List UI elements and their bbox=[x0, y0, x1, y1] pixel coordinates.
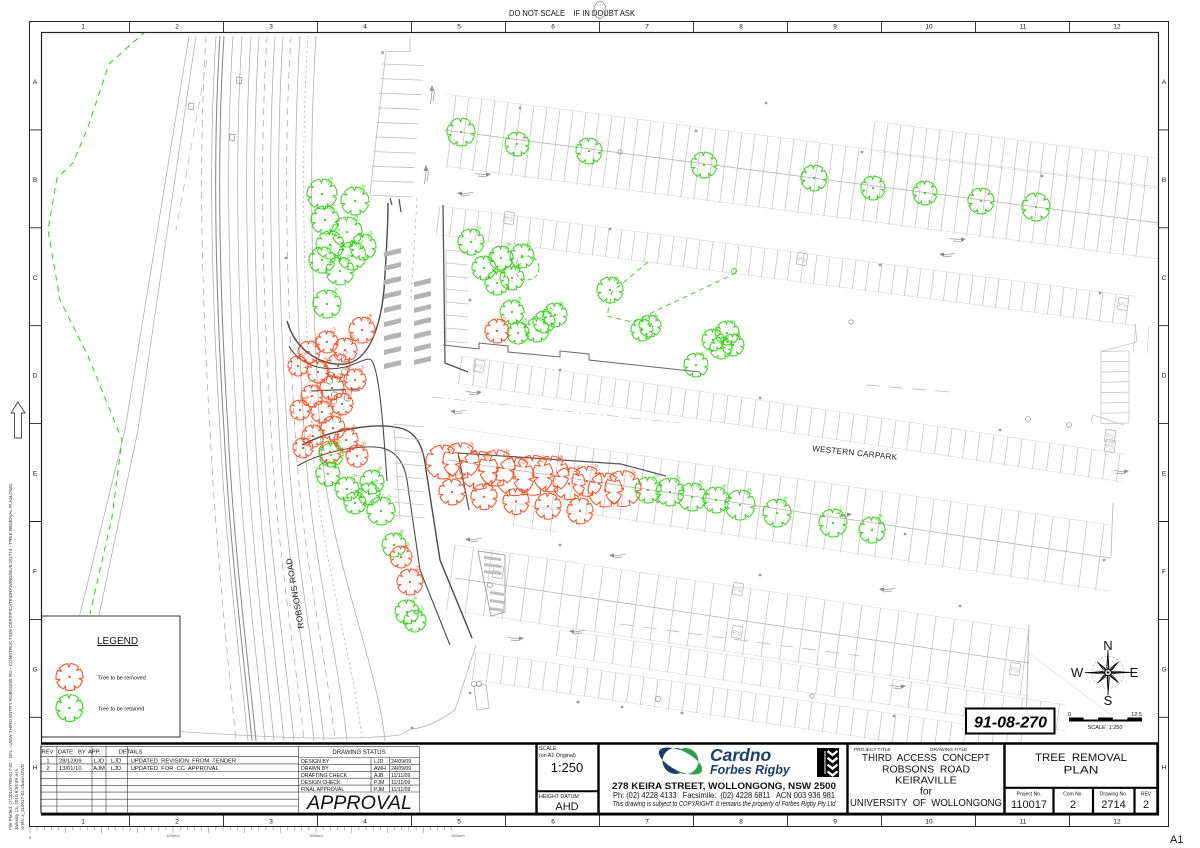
svg-text:SCALE 1:250: SCALE 1:250 bbox=[1088, 725, 1123, 731]
svg-text:UPDATED FOR CC APPROVAL: UPDATED FOR CC APPROVAL bbox=[131, 766, 220, 772]
svg-text:UPDATED REVISION FROM TENDE: UPDATED REVISION FROM TENDER bbox=[131, 758, 236, 764]
svg-text:28/12/09: 28/12/09 bbox=[59, 758, 82, 764]
svg-text:DESIGN CHECK: DESIGN CHECK bbox=[301, 780, 341, 786]
svg-text:3: 3 bbox=[269, 819, 273, 826]
svg-text:24/09/09: 24/09/09 bbox=[391, 766, 411, 772]
svg-text:100mm: 100mm bbox=[166, 833, 180, 838]
svg-text:UNIVERSITY OF WOLLONGONG: UNIVERSITY OF WOLLONGONG bbox=[850, 797, 1002, 809]
svg-text:D: D bbox=[1162, 373, 1167, 380]
svg-text:4: 4 bbox=[363, 24, 367, 31]
svg-text:2: 2 bbox=[1070, 799, 1076, 811]
svg-text:11: 11 bbox=[1020, 24, 1027, 31]
svg-text:PS: PS bbox=[504, 216, 513, 223]
svg-text:C: C bbox=[33, 275, 38, 282]
svg-text:10: 10 bbox=[925, 24, 933, 31]
svg-text:H: H bbox=[33, 764, 38, 771]
svg-text:DATE: DATE bbox=[58, 750, 73, 756]
svg-text:11/11/09: 11/11/09 bbox=[391, 780, 411, 786]
svg-text:Drawing No.: Drawing No. bbox=[1100, 792, 1128, 798]
svg-text:B: B bbox=[1162, 177, 1166, 184]
svg-text:300mm: 300mm bbox=[451, 833, 465, 838]
svg-text:LEGEND: LEGEND bbox=[97, 636, 138, 647]
svg-text:2: 2 bbox=[175, 819, 179, 826]
svg-text:LJD: LJD bbox=[111, 766, 121, 772]
svg-text:2714: 2714 bbox=[1101, 799, 1125, 811]
svg-text:PLAN: PLAN bbox=[1064, 765, 1099, 777]
svg-text:APP.: APP. bbox=[88, 750, 101, 756]
svg-text:PS: PS bbox=[732, 630, 741, 637]
svg-text:TREE REMOVAL: TREE REMOVAL bbox=[1035, 752, 1127, 764]
svg-text:C: C bbox=[1162, 275, 1167, 282]
svg-text:REV: REV bbox=[42, 750, 54, 756]
svg-text:A: A bbox=[1162, 79, 1167, 86]
svg-text:N: N bbox=[1103, 638, 1112, 653]
svg-text:10: 10 bbox=[925, 819, 933, 826]
svg-text:91-08-270: 91-08-270 bbox=[974, 715, 1047, 732]
svg-text:Tree to be removed: Tree to be removed bbox=[98, 676, 146, 682]
svg-text:AWH: AWH bbox=[374, 766, 386, 772]
svg-text:D: D bbox=[33, 373, 38, 380]
svg-text:F: F bbox=[1162, 569, 1166, 576]
svg-text:Forbes Rigby: Forbes Rigby bbox=[710, 763, 791, 777]
svg-text:AHD: AHD bbox=[555, 801, 578, 813]
svg-text:13/01/10: 13/01/10 bbox=[59, 766, 82, 772]
svg-text:1: 1 bbox=[81, 819, 85, 826]
svg-text:6: 6 bbox=[551, 24, 555, 31]
svg-text:SCALE:: SCALE: bbox=[539, 746, 558, 752]
svg-text:(on A1 Original): (on A1 Original) bbox=[539, 753, 576, 759]
svg-text:Xrefs: x_110017-02-2base.DWG: Xrefs: x_110017-02-2base.DWG bbox=[20, 763, 25, 830]
svg-text:0: 0 bbox=[1068, 712, 1071, 718]
svg-text:F: F bbox=[33, 569, 37, 576]
svg-text:PS: PS bbox=[1118, 302, 1127, 309]
svg-text:11: 11 bbox=[1020, 819, 1027, 826]
svg-text:BY: BY bbox=[78, 750, 86, 756]
svg-text:Project No.: Project No. bbox=[1017, 792, 1042, 798]
svg-text:2: 2 bbox=[1143, 799, 1149, 811]
svg-text:G: G bbox=[1161, 666, 1166, 673]
svg-text:This drawing is subject to COP: This drawing is subject to COPYRIGHT. It… bbox=[613, 799, 837, 808]
svg-text:A1: A1 bbox=[1170, 834, 1183, 846]
svg-text:200mm: 200mm bbox=[309, 833, 323, 838]
svg-text:File Plotted: U:\2010\YR8-017-: File Plotted: U:\2010\YR8-017-02 - DFL -… bbox=[8, 483, 13, 830]
svg-text:DESIGN BY: DESIGN BY bbox=[301, 759, 330, 765]
svg-text:11/11/09: 11/11/09 bbox=[391, 773, 411, 779]
svg-text:January 13, 2010 9:53:49 a.m.: January 13, 2010 9:53:49 a.m. bbox=[14, 768, 19, 830]
svg-text:W: W bbox=[1071, 665, 1084, 680]
svg-text:7: 7 bbox=[645, 24, 649, 31]
svg-text:G: G bbox=[32, 666, 37, 673]
svg-text:12: 12 bbox=[1113, 24, 1121, 31]
svg-text:9: 9 bbox=[833, 819, 837, 826]
svg-text:APPROVAL: APPROVAL bbox=[306, 792, 412, 814]
svg-text:1:250: 1:250 bbox=[551, 760, 584, 775]
svg-text:3: 3 bbox=[269, 24, 273, 31]
svg-text:5: 5 bbox=[457, 819, 461, 826]
svg-text:1: 1 bbox=[81, 24, 85, 31]
svg-text:12.5: 12.5 bbox=[1131, 712, 1142, 718]
svg-text:1: 1 bbox=[46, 758, 49, 764]
svg-text:AJM: AJM bbox=[93, 766, 105, 772]
svg-text:H: H bbox=[1162, 764, 1167, 771]
svg-text:2: 2 bbox=[175, 24, 179, 31]
svg-text:4: 4 bbox=[363, 819, 367, 826]
svg-text:5: 5 bbox=[457, 24, 461, 31]
svg-text:S: S bbox=[1104, 693, 1113, 708]
svg-text:AJB: AJB bbox=[374, 773, 384, 779]
svg-text:DRAWN BY: DRAWN BY bbox=[301, 766, 329, 772]
svg-text:2: 2 bbox=[46, 766, 49, 772]
svg-text:DRAFTING CHECK: DRAFTING CHECK bbox=[301, 773, 348, 779]
svg-text:12: 12 bbox=[1113, 819, 1121, 826]
svg-text:PS: PS bbox=[797, 257, 806, 264]
svg-text:Tree to be retained: Tree to be retained bbox=[98, 707, 144, 713]
svg-text:PS: PS bbox=[474, 364, 483, 371]
svg-text:PS: PS bbox=[1105, 444, 1114, 451]
svg-text:8: 8 bbox=[739, 819, 743, 826]
svg-text:A: A bbox=[33, 79, 38, 86]
svg-text:9: 9 bbox=[833, 24, 837, 31]
svg-text:LJD: LJD bbox=[111, 758, 121, 764]
svg-text:REV: REV bbox=[1141, 792, 1152, 798]
svg-text:278 KEIRA STREET, WOLLONGONG,: 278 KEIRA STREET, WOLLONGONG, NSW 2500 bbox=[612, 781, 836, 791]
svg-text:24/09/09: 24/09/09 bbox=[391, 759, 411, 765]
svg-text:E: E bbox=[33, 471, 38, 478]
svg-text:110017: 110017 bbox=[1011, 799, 1047, 811]
svg-text:DETAILS: DETAILS bbox=[119, 750, 143, 756]
svg-text:Com No.: Com No. bbox=[1063, 792, 1083, 798]
svg-text:6: 6 bbox=[551, 819, 555, 826]
svg-text:B: B bbox=[33, 177, 37, 184]
svg-text:HEIGHT DATUM: HEIGHT DATUM bbox=[539, 794, 579, 800]
svg-text:PS: PS bbox=[493, 570, 502, 577]
svg-text:PJM: PJM bbox=[374, 780, 384, 786]
svg-text:E: E bbox=[1162, 471, 1167, 478]
svg-text:Cardno: Cardno bbox=[710, 745, 772, 765]
svg-text:LJD: LJD bbox=[94, 758, 104, 764]
svg-text:7: 7 bbox=[645, 819, 649, 826]
svg-text:PS: PS bbox=[733, 587, 742, 594]
svg-text:8: 8 bbox=[739, 24, 743, 31]
svg-text:DO NOT SCALE IF IN DOUBT AS: DO NOT SCALE IF IN DOUBT ASK bbox=[509, 8, 635, 18]
svg-text:PS: PS bbox=[1010, 667, 1019, 674]
svg-text:E: E bbox=[1130, 665, 1139, 680]
svg-text:for: for bbox=[920, 786, 933, 798]
svg-text:LJD: LJD bbox=[374, 759, 383, 765]
svg-text:DRAWING STATUS: DRAWING STATUS bbox=[332, 750, 385, 756]
svg-text:THIRD ACCESS CONCEPT: THIRD ACCESS CONCEPT bbox=[862, 752, 991, 764]
